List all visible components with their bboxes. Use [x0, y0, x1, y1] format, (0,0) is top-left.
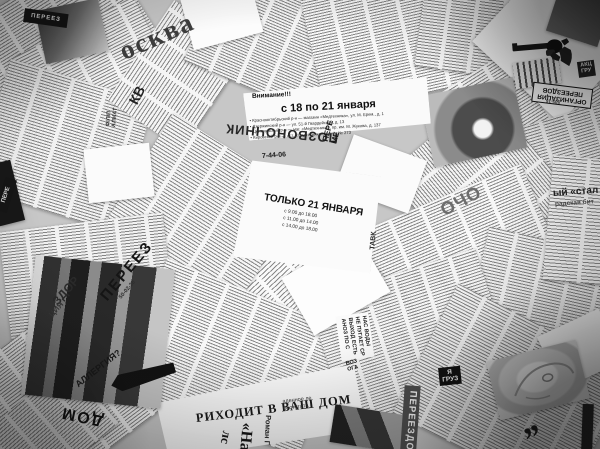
revolver-photo [508, 27, 586, 79]
blank-scrap-left [83, 143, 154, 204]
banner-ya-gruz: ЯГРУЗ [438, 366, 462, 386]
phone-505-16: 505-16 [546, 97, 561, 104]
print-scrap-right-edge-stal [543, 155, 600, 286]
text-vody-strip: НАС ВОДЫНЕ ПУГАЕТ СРВЫХОД ЕСТЬАНОЗ ПО С [336, 312, 375, 362]
phone-44-06: 7-44-06 [262, 151, 287, 160]
text-filip-almat: ФІЛІПАЛМАТ [106, 107, 120, 128]
dark-bar-bottom-right [581, 404, 594, 449]
text-tavk: ТАВК [369, 231, 378, 250]
text-ls-vertical: лс [218, 430, 234, 445]
chip-akts-gru: АКЦГРУ [577, 60, 596, 78]
text-na-vertical: «На [236, 422, 256, 449]
revolver-icon [508, 27, 586, 79]
photo-scrap-people [21, 255, 175, 409]
text-pere-me: ПЕРЕМЕ [322, 119, 344, 144]
text-roman-g: Роман Г [262, 415, 272, 445]
newspaper-collage-photo: оскваКВФІЛІПАЛМАТВнимание!!!с 18 по 21 я… [0, 0, 600, 449]
